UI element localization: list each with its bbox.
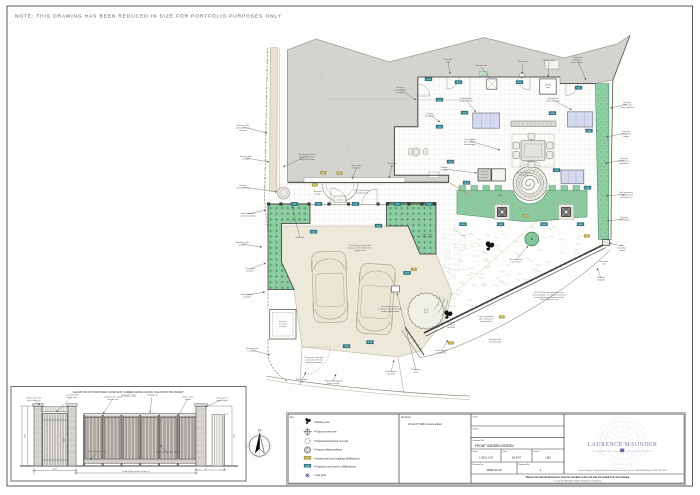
svg-text:0.000: 0.000 [462, 113, 466, 115]
svg-text:000: 000 [524, 216, 527, 218]
svg-text:000: 000 [500, 317, 503, 319]
svg-text:Existingfootpath: Existingfootpath [597, 276, 605, 281]
svg-text:-: - [517, 421, 518, 424]
svg-text:1.5m: 1.5m [233, 433, 235, 438]
svg-text:Gravel driveway oncompacted ha: Gravel driveway oncompacted hardcore wit… [378, 305, 402, 313]
svg-text:Scale: Scale [473, 451, 479, 453]
svg-text:000: 000 [338, 173, 341, 175]
svg-text:Brick pier tomatch house: Brick pier tomatch house [216, 397, 228, 402]
svg-text:0.000: 0.000 [311, 232, 315, 234]
svg-text:(SCALE 1:25): (SCALE 1:25) [121, 395, 135, 398]
svg-text:0.000: 0.000 [585, 188, 589, 190]
svg-text:Greenhouse: Greenhouse [475, 64, 487, 67]
svg-text:LAURENCE MAUNDER: LAURENCE MAUNDER [588, 442, 658, 448]
svg-text:Clipped boxin planters: Clipped boxin planters [422, 234, 434, 238]
svg-text:Drawing No: Drawing No [473, 464, 484, 466]
svg-text:Removed: existinghedge and fen: Removed: existinghedge and fencealong dr… [298, 153, 316, 161]
svg-text:Brick pier: Brick pier [296, 236, 305, 239]
svg-text:Rose Cottage, Chelmsford Road: Rose Cottage, Chelmsford Road, Felsted, … [579, 469, 668, 472]
svg-text:New hornbeamhedge plantedat 45: New hornbeamhedge plantedat 450mm crs [619, 191, 633, 199]
svg-text:mat well: mat well [337, 198, 344, 201]
svg-text:0.000: 0.000 [576, 88, 580, 90]
svg-text:= Proposed light positions: = Proposed light positions [314, 449, 343, 452]
svg-text:© Laurence Maunder Garden Desi: © Laurence Maunder Garden Design & Consu… [553, 480, 602, 483]
svg-text:0.000: 0.000 [437, 127, 441, 129]
svg-text:0.000: 0.000 [353, 204, 357, 206]
svg-text:Capping rail: Capping rail [147, 395, 158, 397]
svg-text:ELEVATION OF PROPOSED GATES AN: ELEVATION OF PROPOSED GATES AND SCREEN F… [73, 390, 184, 394]
svg-text:store: store [546, 86, 550, 89]
svg-text:0.000: 0.000 [344, 346, 348, 348]
svg-text:Bin store: Bin store [279, 320, 286, 323]
svg-text:Proposedclimbers: Proposedclimbers [246, 267, 256, 272]
svg-text:10.8m (6 No. panels at 1.8m c: 10.8m (6 No. panels at 1.8m crs) [122, 470, 150, 473]
svg-text:1:50 & 1:75: 1:50 & 1:75 [479, 456, 493, 460]
svg-text:0.000: 0.000 [448, 162, 452, 164]
svg-text:NOTE: THIS DRAWING HAS BEEN R: NOTE: THIS DRAWING HAS BEEN REDUCED IN S… [15, 14, 282, 20]
svg-text:0.000: 0.000 [316, 204, 320, 206]
svg-text:000: 000 [412, 269, 415, 271]
svg-text:Revision No: Revision No [519, 464, 531, 466]
svg-text:23-10-07 Traffic system added: 23-10-07 Traffic system added [408, 423, 442, 426]
svg-text:0.000: 0.000 [426, 79, 430, 81]
svg-text:0.000: 0.000 [464, 183, 468, 185]
svg-text:3.6m: 3.6m [53, 469, 58, 471]
svg-text:000: 000 [313, 185, 316, 187]
svg-text:19mm feather edge boards: 19mm feather edge boards [156, 451, 180, 454]
svg-text:New planting toscreen boundary: New planting toscreen boundary [240, 212, 256, 217]
svg-text:0.000: 0.000 [368, 342, 372, 344]
svg-text:New York stonepaving to path: New York stonepaving to path [355, 189, 370, 194]
svg-text:= Proposed new tree: = Proposed new tree [314, 431, 338, 434]
svg-text:LSM: LSM [545, 456, 551, 460]
svg-text:150mm gravel board: 150mm gravel board [88, 451, 106, 453]
svg-text:0.000: 0.000 [437, 100, 441, 102]
svg-text:Proposedclimbers tofence panel: Proposedclimbers tofence panels [571, 56, 583, 64]
svg-text:Outdoorkitchen: Outdoorkitchen [440, 166, 448, 171]
svg-text:Revisions: Revisions [401, 417, 412, 419]
svg-text:Lawn reinstatedafter removal o: Lawn reinstatedafter removal ofexisting … [479, 315, 495, 323]
svg-text:0.000: 0.000 [305, 465, 309, 467]
svg-text:= Proposed new levels in (Mi: = Proposed new levels in (Millimetres) [314, 465, 356, 468]
svg-text:1.8m: 1.8m [25, 433, 27, 438]
svg-text:Proposed 5-bar gateset back 5.: Proposed 5-bar gateset back 5.5m fromhig… [305, 356, 325, 364]
svg-text:0.000: 0.000 [405, 273, 409, 275]
svg-text:Existingcontoursretained: Existingcontoursretained [447, 321, 456, 329]
svg-text:26-9-07: 26-9-07 [512, 456, 522, 460]
svg-text:= Proposed tree/shrub remova: = Proposed tree/shrub removal [314, 440, 349, 443]
svg-text:0.000: 0.000 [461, 224, 465, 226]
svg-text:Water butt: Water butt [518, 60, 528, 63]
svg-text:Drawing Title: Drawing Title [473, 439, 485, 442]
svg-text:0.000: 0.000 [542, 224, 546, 226]
svg-text:0.000: 0.000 [578, 224, 582, 226]
svg-text:Please note that all dimension: Please note that all dimensions must be … [526, 476, 630, 479]
svg-text:0.000: 0.000 [587, 131, 591, 133]
svg-text:Bin/log store: Bin/log store [543, 59, 555, 62]
svg-text:0.000: 0.000 [517, 82, 521, 84]
svg-text:Drawn: Drawn [534, 451, 540, 453]
svg-text:Footpath fallstowards road: Footpath fallstowards road [489, 338, 502, 343]
svg-text:0.000: 0.000 [554, 170, 558, 172]
svg-text:in existing: in existing [279, 323, 287, 326]
svg-text:-: - [517, 433, 518, 436]
svg-text:0.000: 0.000 [376, 226, 380, 228]
svg-text:0.000: 0.000 [395, 204, 399, 206]
svg-text:0.000: 0.000 [550, 113, 554, 115]
svg-text:0.000: 0.000 [456, 82, 460, 84]
svg-text:000: 000 [449, 343, 452, 345]
svg-text:FRONT GARDEN DESIGN: FRONT GARDEN DESIGN [475, 444, 514, 448]
svg-text:000: 000 [322, 172, 325, 174]
svg-text:= Existing site level readin: = Existing site level readings (Millimet… [314, 457, 360, 460]
svg-text:Lawn: Lawn [461, 235, 467, 237]
svg-text:000: 000 [585, 236, 588, 238]
svg-text:= Existing tree: = Existing tree [314, 421, 331, 424]
svg-text:0.000: 0.000 [292, 204, 296, 206]
svg-text:Client: Client [473, 415, 479, 418]
svg-text:0.000: 0.000 [498, 224, 502, 226]
svg-text:000: 000 [306, 458, 309, 460]
svg-text:Project: Project [473, 427, 480, 430]
svg-text:position: position [280, 325, 287, 328]
svg-text:0.000: 0.000 [427, 204, 431, 206]
svg-text:GARDEN DESIGN & CONSULTANCY: GARDEN DESIGN & CONSULTANCY [592, 450, 654, 453]
svg-text:29/8/LAG-40: 29/8/LAG-40 [486, 468, 502, 472]
svg-text:= Gas point: = Gas point [314, 474, 327, 477]
svg-text:BBQ: BBQ [498, 195, 503, 197]
